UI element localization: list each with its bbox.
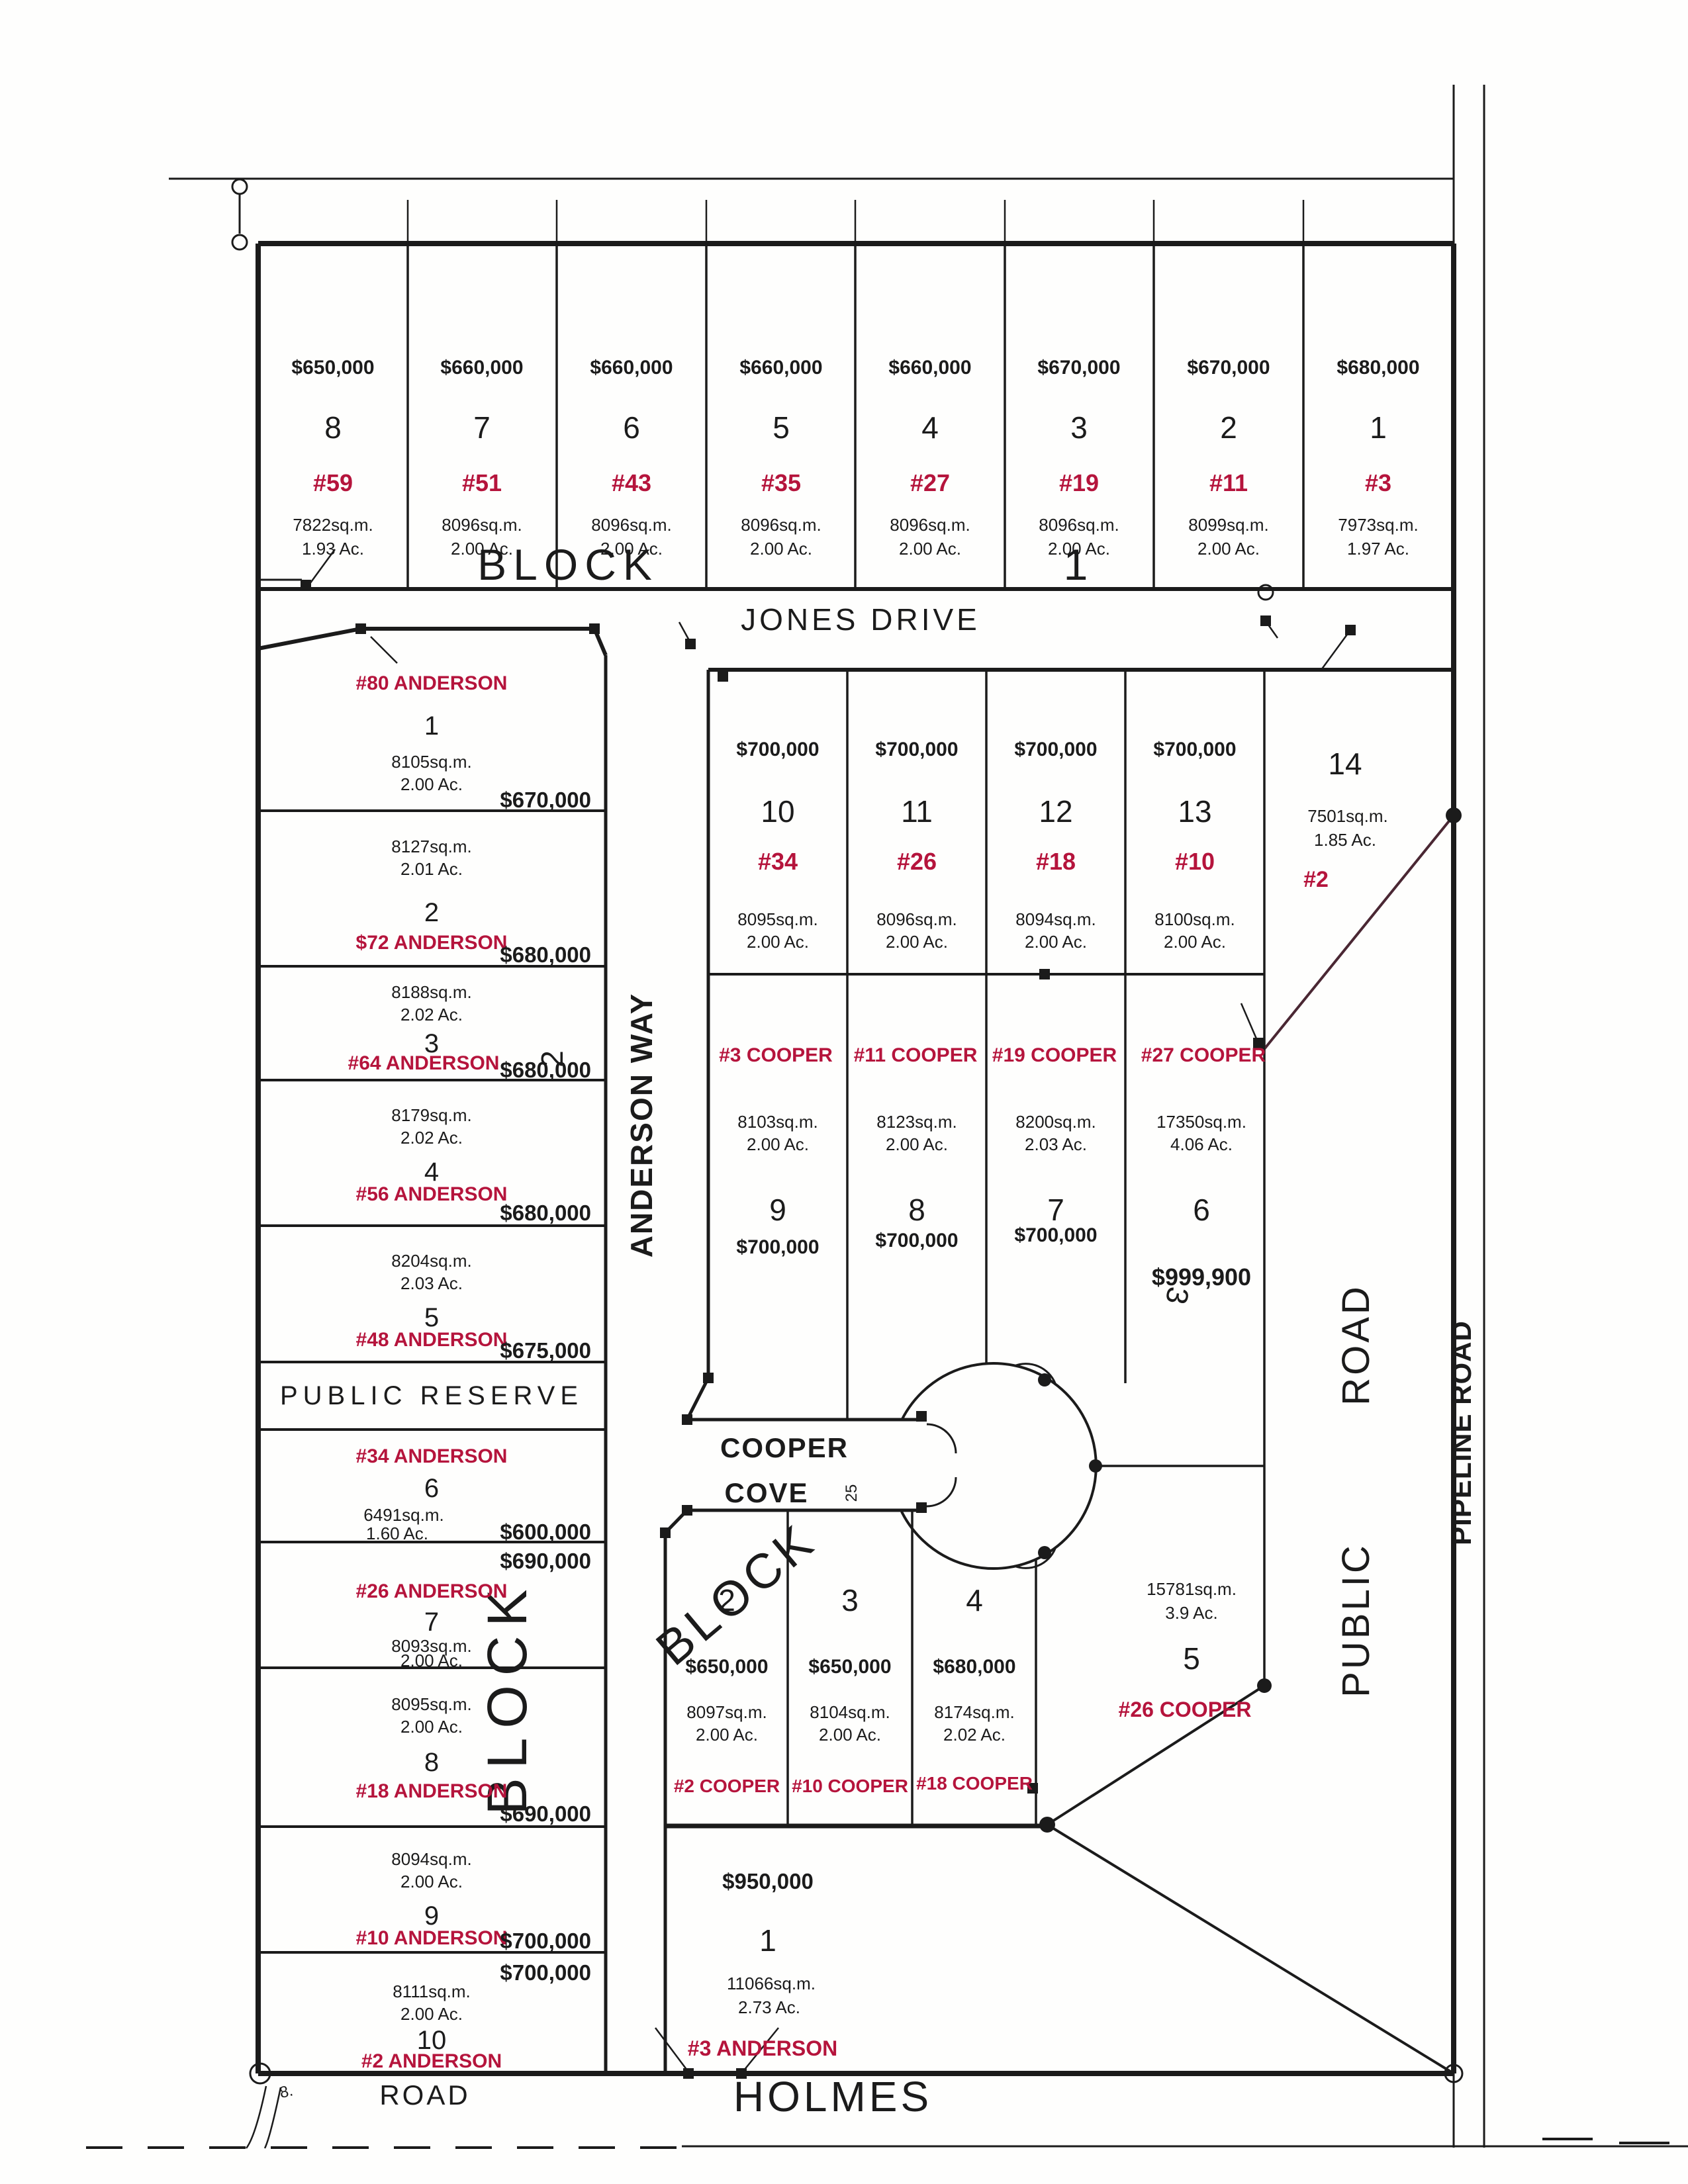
culdesac-bulb <box>902 1363 1096 1569</box>
jones-drive-south-edge-west <box>258 629 606 655</box>
lot-address: #27 COOPER <box>1141 1044 1266 1066</box>
lot-number: 9 <box>769 1193 786 1227</box>
lot-price: $999,900 <box>1152 1263 1251 1291</box>
lot-price: $700,000 <box>875 1230 958 1251</box>
public-road-label-word2: ROAD <box>1335 1284 1378 1406</box>
lot-area-sqm: 8105sq.m. <box>391 752 471 772</box>
block3-lots: 2 $650,000 8097sq.m. 2.00 Ac. #2 COOPER … <box>674 1583 1033 1796</box>
lot-price: $680,000 <box>1336 357 1419 379</box>
holmes-road-label: HOLMES <box>733 2073 932 2120</box>
lot5: 15781sq.m. 3.9 Ac. 5 #26 COOPER <box>1119 1579 1252 1721</box>
road-word-label: ROAD <box>379 2079 470 2111</box>
monument-square <box>683 2068 694 2079</box>
corner-witness-curve <box>246 2086 281 2148</box>
lot-area-sqm: 8096sq.m. <box>1039 515 1119 535</box>
lot-area-sqm: 6491sq.m. <box>363 1505 444 1525</box>
lot-number: 4 <box>424 1158 439 1187</box>
lot-area-ac: 1.60 Ac. <box>366 1524 428 1543</box>
lot-number: 2 <box>718 1583 735 1617</box>
survey-circle <box>232 179 247 194</box>
lot-number: 7 <box>424 1608 439 1637</box>
lot-number: 6 <box>623 410 640 445</box>
lot-number: 7 <box>473 410 491 445</box>
lot-area-ac: 2.00 Ac. <box>886 1134 948 1154</box>
lot-area-ac: 1.85 Ac. <box>1314 830 1376 850</box>
culdesac-arc <box>927 1477 956 1506</box>
block-labels: BLOCK 1 BLOCK 2 BLOCK 3 PUBLIC RESERVE <box>280 540 1196 1815</box>
lot-area-ac: 2.00 Ac. <box>400 1651 463 1670</box>
lot-area-ac: 2.73 Ac. <box>738 1997 800 2017</box>
monument-square <box>916 1502 927 1513</box>
monument-dot <box>1089 1459 1102 1473</box>
lot-price: $660,000 <box>888 357 971 379</box>
lot-number: 8 <box>908 1193 925 1227</box>
lot-number: 8 <box>424 1748 439 1777</box>
lot-area-sqm: 8099sq.m. <box>1188 515 1268 535</box>
lot-number: 12 <box>1039 794 1072 829</box>
lot-area-sqm: 8094sq.m. <box>391 1849 471 1869</box>
lot-address: #51 <box>462 469 502 496</box>
lot-address: #26 <box>897 848 937 875</box>
monument-dot <box>1257 1678 1272 1693</box>
lot-price: $670,000 <box>1037 357 1120 379</box>
lot-area-sqm: 8094sq.m. <box>1015 909 1096 929</box>
cove-width-note: 25 <box>843 1484 861 1502</box>
lot-price: $700,000 <box>500 1929 591 1953</box>
monument-square <box>916 1411 927 1422</box>
lot-address: #48 ANDERSON <box>356 1329 508 1351</box>
lot-area-sqm: 8095sq.m. <box>391 1694 471 1714</box>
lot-price: $690,000 <box>500 1549 591 1573</box>
lot-address: #19 <box>1059 469 1099 496</box>
lot-number: 1 <box>424 711 439 741</box>
lot-address: #2 COOPER <box>674 1776 780 1796</box>
lot-area-ac: 2.00 Ac. <box>600 539 663 559</box>
lot-area-ac: 2.00 Ac. <box>886 932 948 952</box>
lot-area-ac: 2.00 Ac. <box>696 1725 758 1745</box>
lot-address: #3 ANDERSON <box>688 2036 837 2060</box>
monument-square <box>1039 969 1050 979</box>
lot-address: #10 ANDERSON <box>356 1927 508 1949</box>
lot-area-ac: 2.02 Ac. <box>400 1005 463 1024</box>
lot-area-ac: 2.00 Ac. <box>400 2004 463 2024</box>
monument-square <box>682 1414 692 1425</box>
lot-area-ac: 2.00 Ac. <box>747 932 809 952</box>
lot-area-sqm: 8200sq.m. <box>1015 1112 1096 1132</box>
lot-number: 14 <box>1328 747 1362 781</box>
lot-number: 3 <box>1070 410 1088 445</box>
lot-price: $700,000 <box>736 1236 819 1258</box>
lot-address: #11 COOPER <box>854 1044 978 1066</box>
lot-area-sqm: 17350sq.m. <box>1156 1112 1246 1132</box>
lot-area-sqm: 8179sq.m. <box>391 1105 471 1125</box>
block3-label: BLOCK <box>645 1512 825 1676</box>
lot-area-sqm: 7822sq.m. <box>293 515 373 535</box>
lot-area-sqm: 8095sq.m. <box>737 909 818 929</box>
monument-square <box>1260 615 1271 626</box>
lot-line-tick <box>408 200 1303 244</box>
lot-area-ac: 2.00 Ac. <box>1197 539 1260 559</box>
lot-address: #10 <box>1175 848 1215 875</box>
lot-area-sqm: 8097sq.m. <box>686 1702 767 1722</box>
lot-area-ac: 2.00 Ac. <box>750 539 812 559</box>
lot-area-ac: 2.03 Ac. <box>1025 1134 1087 1154</box>
lot-area-ac: 3.9 Ac. <box>1165 1603 1218 1623</box>
lot-address: #43 <box>612 469 651 496</box>
monument-dot <box>1446 807 1462 823</box>
lot-number: 9 <box>424 1901 439 1931</box>
lot-number: 5 <box>424 1303 439 1332</box>
lot-number: 5 <box>773 410 790 445</box>
lot-number: 2 <box>424 898 439 927</box>
lot-number: 4 <box>966 1583 983 1617</box>
monument-square <box>301 580 311 590</box>
lot-price: $700,000 <box>1014 1224 1097 1246</box>
lot-number: 4 <box>921 410 939 445</box>
lot-area-ac: 2.00 Ac. <box>1025 932 1087 952</box>
monument-square <box>703 1373 714 1383</box>
lot-area-ac: 2.00 Ac. <box>1048 539 1110 559</box>
lot-price: $700,000 <box>1153 739 1236 760</box>
monument-dot <box>1038 1546 1051 1559</box>
lot-area-sqm: 8204sq.m. <box>391 1251 471 1271</box>
lot-number: 13 <box>1178 794 1211 829</box>
lot-area-ac: 2.00 Ac. <box>747 1134 809 1154</box>
lot-area-ac: 2.03 Ac. <box>400 1273 463 1293</box>
lot-price: $600,000 <box>500 1520 591 1544</box>
monument-dot <box>1038 1373 1051 1387</box>
lot-number: 7 <box>1047 1193 1064 1227</box>
lot-number: 8 <box>324 410 342 445</box>
lot-address: #18 COOPER <box>916 1773 1033 1794</box>
lot-price: $700,000 <box>736 739 819 760</box>
lot14: 14 7501sq.m. 1.85 Ac. #2 <box>1303 747 1388 892</box>
lot-address: #64 ANDERSON <box>348 1052 500 1074</box>
jones-drive-label: JONES DRIVE <box>741 602 980 637</box>
lot-price: $670,000 <box>1187 357 1270 379</box>
lot-area-sqm: 7501sq.m. <box>1307 806 1387 826</box>
lot-area-ac: 2.02 Ac. <box>400 1128 463 1148</box>
lot-number: 1 <box>1370 410 1387 445</box>
lot-price: $675,000 <box>500 1338 591 1363</box>
cooper-cove-label-line1: COOPER <box>720 1432 849 1463</box>
public-road-label-word1: PUBLIC <box>1335 1543 1378 1698</box>
lot-price: $690,000 <box>500 1801 591 1826</box>
lot-area-ac: 1.93 Ac. <box>302 539 364 559</box>
lot-area-ac: 2.00 Ac. <box>400 1717 463 1737</box>
lot-address: #34 <box>758 848 798 875</box>
lot-number: 10 <box>761 794 794 829</box>
lot-price: $700,000 <box>500 1960 591 1985</box>
lot-area-sqm: 8096sq.m. <box>890 515 970 535</box>
culdesac-arc <box>927 1424 956 1453</box>
lot-price: $680,000 <box>500 1058 591 1082</box>
lot-number: 2 <box>1220 410 1237 445</box>
lot-area-sqm: 11066sq.m. <box>727 1974 816 1993</box>
lot-address: #11 <box>1209 469 1248 496</box>
monument-square <box>355 623 366 634</box>
lot-area-sqm: 8096sq.m. <box>591 515 671 535</box>
lot-address: #26 ANDERSON <box>356 1580 508 1602</box>
lot-address: #59 <box>313 469 353 496</box>
survey-circle <box>232 235 247 250</box>
lot-price: $650,000 <box>808 1656 891 1678</box>
lot-area-ac: 2.00 Ac. <box>400 774 463 794</box>
plat-map-page: BLOCK 1 BLOCK 2 BLOCK 3 PUBLIC RESERVE J… <box>0 0 1688 2184</box>
monument-square <box>685 639 696 649</box>
lot-area-sqm: 8100sq.m. <box>1154 909 1235 929</box>
lot-price: $650,000 <box>685 1656 768 1678</box>
lot-area-sqm: 8123sq.m. <box>876 1112 957 1132</box>
lot-price: $680,000 <box>500 942 591 967</box>
lot-area-sqm: 8096sq.m. <box>442 515 522 535</box>
lot1-east-diagonal <box>1047 1825 1454 2073</box>
corner-annotation: 8. <box>278 2081 295 2102</box>
lot-area-ac: 2.01 Ac. <box>400 859 463 879</box>
lot-price: $660,000 <box>440 357 523 379</box>
lot-area-ac: 2.02 Ac. <box>943 1725 1006 1745</box>
lot-area-ac: 4.06 Ac. <box>1170 1134 1233 1154</box>
lot-price: $700,000 <box>875 739 958 760</box>
lot-area-sqm: 8127sq.m. <box>391 837 471 856</box>
lot-address: #10 COOPER <box>792 1776 908 1796</box>
lot-number: 1 <box>759 1923 776 1958</box>
anderson-way-east-edge <box>687 670 708 1420</box>
public-reserve-label: PUBLIC RESERVE <box>280 1381 583 1410</box>
lot1: $950,000 1 11066sq.m. 2.73 Ac. #3 ANDERS… <box>688 1869 837 2060</box>
lot-address: #27 <box>910 469 950 496</box>
lot-address: #80 ANDERSON <box>356 672 508 694</box>
monument-square <box>718 671 728 682</box>
lot-price: $680,000 <box>933 1656 1015 1678</box>
lot-number: 3 <box>841 1583 859 1617</box>
monument-square <box>682 1505 692 1516</box>
lot-area-ac: 2.00 Ac. <box>400 1872 463 1891</box>
lot-address: #34 ANDERSON <box>356 1445 508 1467</box>
lot-area-sqm: 7973sq.m. <box>1338 515 1418 535</box>
monument-dot <box>1039 1817 1055 1833</box>
lot-price: $650,000 <box>291 357 374 379</box>
lot-address: #56 ANDERSON <box>356 1183 508 1205</box>
lot-area-sqm: 8188sq.m. <box>391 982 471 1002</box>
block1-lot-lines <box>408 200 1303 589</box>
lot-address: #2 <box>1303 867 1329 892</box>
lot-area-sqm: 8174sq.m. <box>934 1702 1014 1722</box>
lot-address: #35 <box>761 469 801 496</box>
lot-number: 6 <box>424 1474 439 1503</box>
lot-address: #18 ANDERSON <box>356 1780 508 1802</box>
lot-address: #3 <box>1365 469 1391 496</box>
lot-price: $950,000 <box>722 1869 814 1893</box>
lot-price: $660,000 <box>590 357 673 379</box>
lot-area-ac: 2.00 Ac. <box>451 539 513 559</box>
lot-address: #19 COOPER <box>992 1044 1117 1066</box>
lot-area-sqm: 8096sq.m. <box>741 515 821 535</box>
lot-address: #2 ANDERSON <box>361 2050 502 2072</box>
lot-number: 11 <box>901 794 933 829</box>
lot-address: $72 ANDERSON <box>356 932 508 954</box>
monument-square <box>660 1527 671 1538</box>
lot-address: #3 COOPER <box>719 1044 833 1066</box>
lot-area-ac: 1.97 Ac. <box>1347 539 1409 559</box>
monument-square <box>589 623 600 634</box>
pipeline-road-label: PIPELINE ROAD <box>1446 1320 1477 1545</box>
lot-address: #18 <box>1036 848 1076 875</box>
plat-map: BLOCK 1 BLOCK 2 BLOCK 3 PUBLIC RESERVE J… <box>0 0 1688 2184</box>
block2-lots: #80 ANDERSON 1 8105sq.m. 2.00 Ac. $670,0… <box>348 672 591 2072</box>
lot-number: 6 <box>1193 1193 1210 1227</box>
lot14-diagonal <box>1264 815 1454 1049</box>
lot-address: #26 COOPER <box>1119 1698 1252 1721</box>
lot-price: $680,000 <box>500 1201 591 1225</box>
lot-number: 5 <box>1183 1641 1200 1676</box>
lot-area-sqm: 15781sq.m. <box>1147 1579 1237 1599</box>
cooper-cove-label-line2: COVE <box>724 1477 808 1508</box>
lot-area-ac: 2.00 Ac. <box>819 1725 881 1745</box>
cooper-lots: #3 COOPER 8103sq.m. 2.00 Ac. 9 $700,000 … <box>719 1044 1266 1291</box>
lot-area-sqm: 8104sq.m. <box>810 1702 890 1722</box>
lot-area-ac: 2.00 Ac. <box>1164 932 1226 952</box>
lot-area-ac: 2.00 Ac. <box>899 539 961 559</box>
lot-price: $660,000 <box>739 357 822 379</box>
lot-area-sqm: 8096sq.m. <box>876 909 957 929</box>
lot-price: $670,000 <box>500 788 591 812</box>
anderson-way-label: ANDERSON WAY <box>624 993 659 1258</box>
lot-area-sqm: 8111sq.m. <box>393 1981 471 2001</box>
lot-price: $700,000 <box>1014 739 1097 760</box>
lot-area-sqm: 8103sq.m. <box>737 1112 818 1132</box>
